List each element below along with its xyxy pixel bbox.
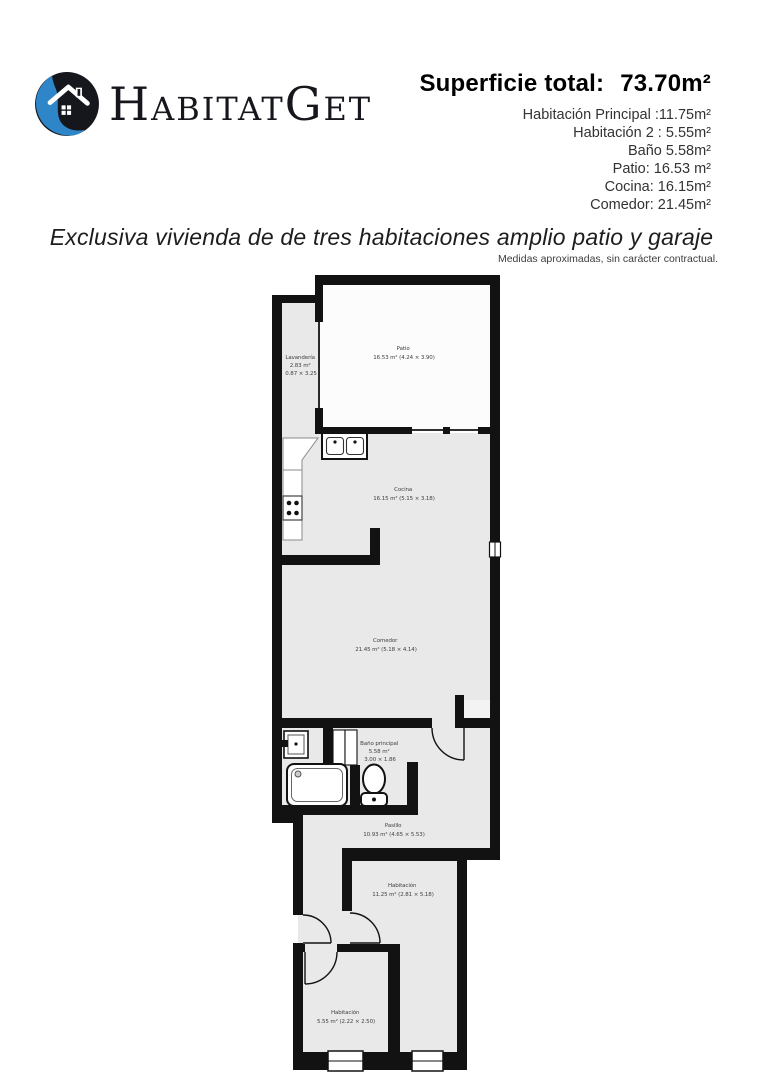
wall <box>457 848 500 860</box>
wall <box>464 718 500 728</box>
alcove-floor <box>464 700 490 718</box>
wall <box>315 275 500 285</box>
wall <box>272 555 380 565</box>
wall <box>337 944 390 952</box>
wall <box>293 944 305 952</box>
wall <box>350 765 360 807</box>
wall <box>342 848 457 861</box>
wall <box>272 718 432 728</box>
bathtub <box>287 764 347 806</box>
bathroom-sink <box>281 731 308 758</box>
wall <box>388 944 400 1070</box>
wall <box>323 728 333 765</box>
wall <box>455 695 464 728</box>
window <box>328 1051 363 1071</box>
kitchen-sink <box>322 433 367 459</box>
floorplan-svg: Lavandería 2.83 m² 0.87 × 3.25 Patio 16.… <box>0 0 763 1080</box>
wall <box>443 427 450 434</box>
wall <box>478 427 492 434</box>
wall <box>293 823 303 915</box>
wall <box>490 275 500 860</box>
toilet <box>361 765 387 807</box>
closet <box>333 730 357 765</box>
wall <box>457 860 467 1070</box>
wall <box>370 528 380 565</box>
flyer-page: HABITATGET Superficie total:73.70m² Habi… <box>0 0 763 1080</box>
stove <box>283 496 302 520</box>
window <box>412 1051 443 1071</box>
window <box>490 542 501 557</box>
wall <box>293 943 303 1070</box>
wall <box>342 861 352 911</box>
wall <box>407 762 418 807</box>
